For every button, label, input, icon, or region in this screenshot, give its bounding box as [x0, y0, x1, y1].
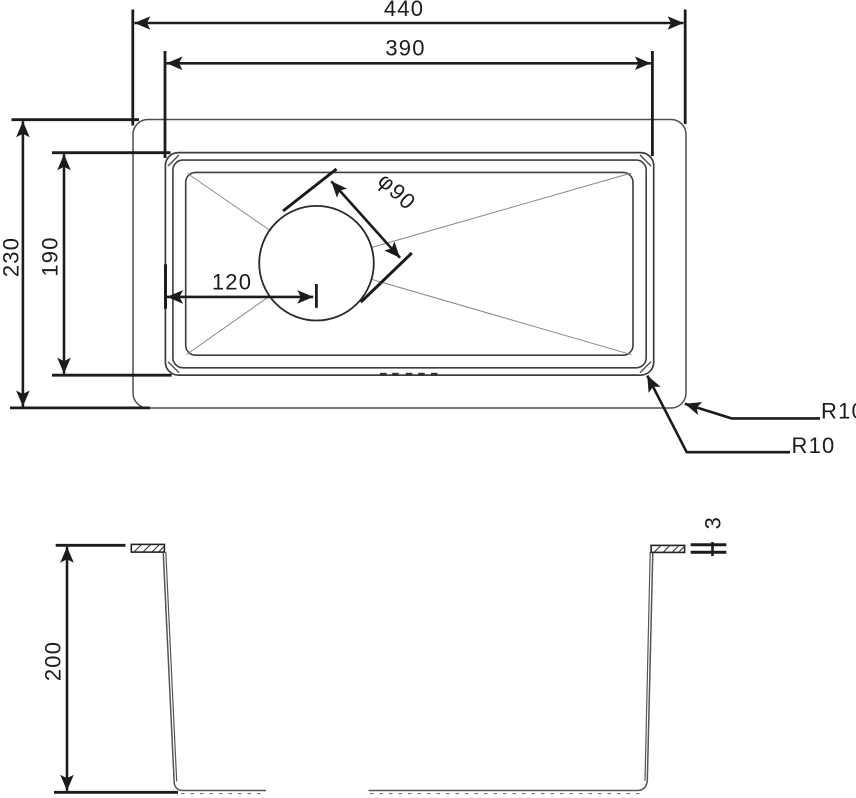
svg-text:120: 120	[212, 270, 252, 295]
svg-text:φ90: φ90	[373, 168, 421, 215]
svg-text:200: 200	[41, 641, 66, 681]
svg-text:440: 440	[384, 0, 424, 21]
svg-text:R10: R10	[792, 433, 836, 458]
svg-text:190: 190	[38, 236, 63, 276]
svg-text:R10: R10	[821, 399, 856, 424]
svg-text:390: 390	[385, 36, 425, 61]
svg-text:230: 230	[0, 237, 23, 277]
svg-text:3: 3	[701, 516, 726, 529]
